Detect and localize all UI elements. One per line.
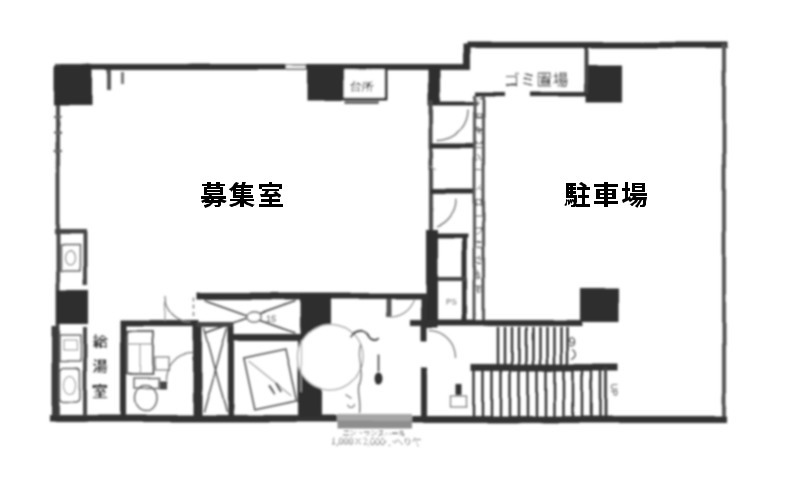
svg-text:UP: UP	[609, 384, 619, 397]
svg-text:15: 15	[266, 314, 276, 324]
svg-text:PS: PS	[446, 298, 457, 307]
svg-text:9: 9	[568, 334, 575, 349]
